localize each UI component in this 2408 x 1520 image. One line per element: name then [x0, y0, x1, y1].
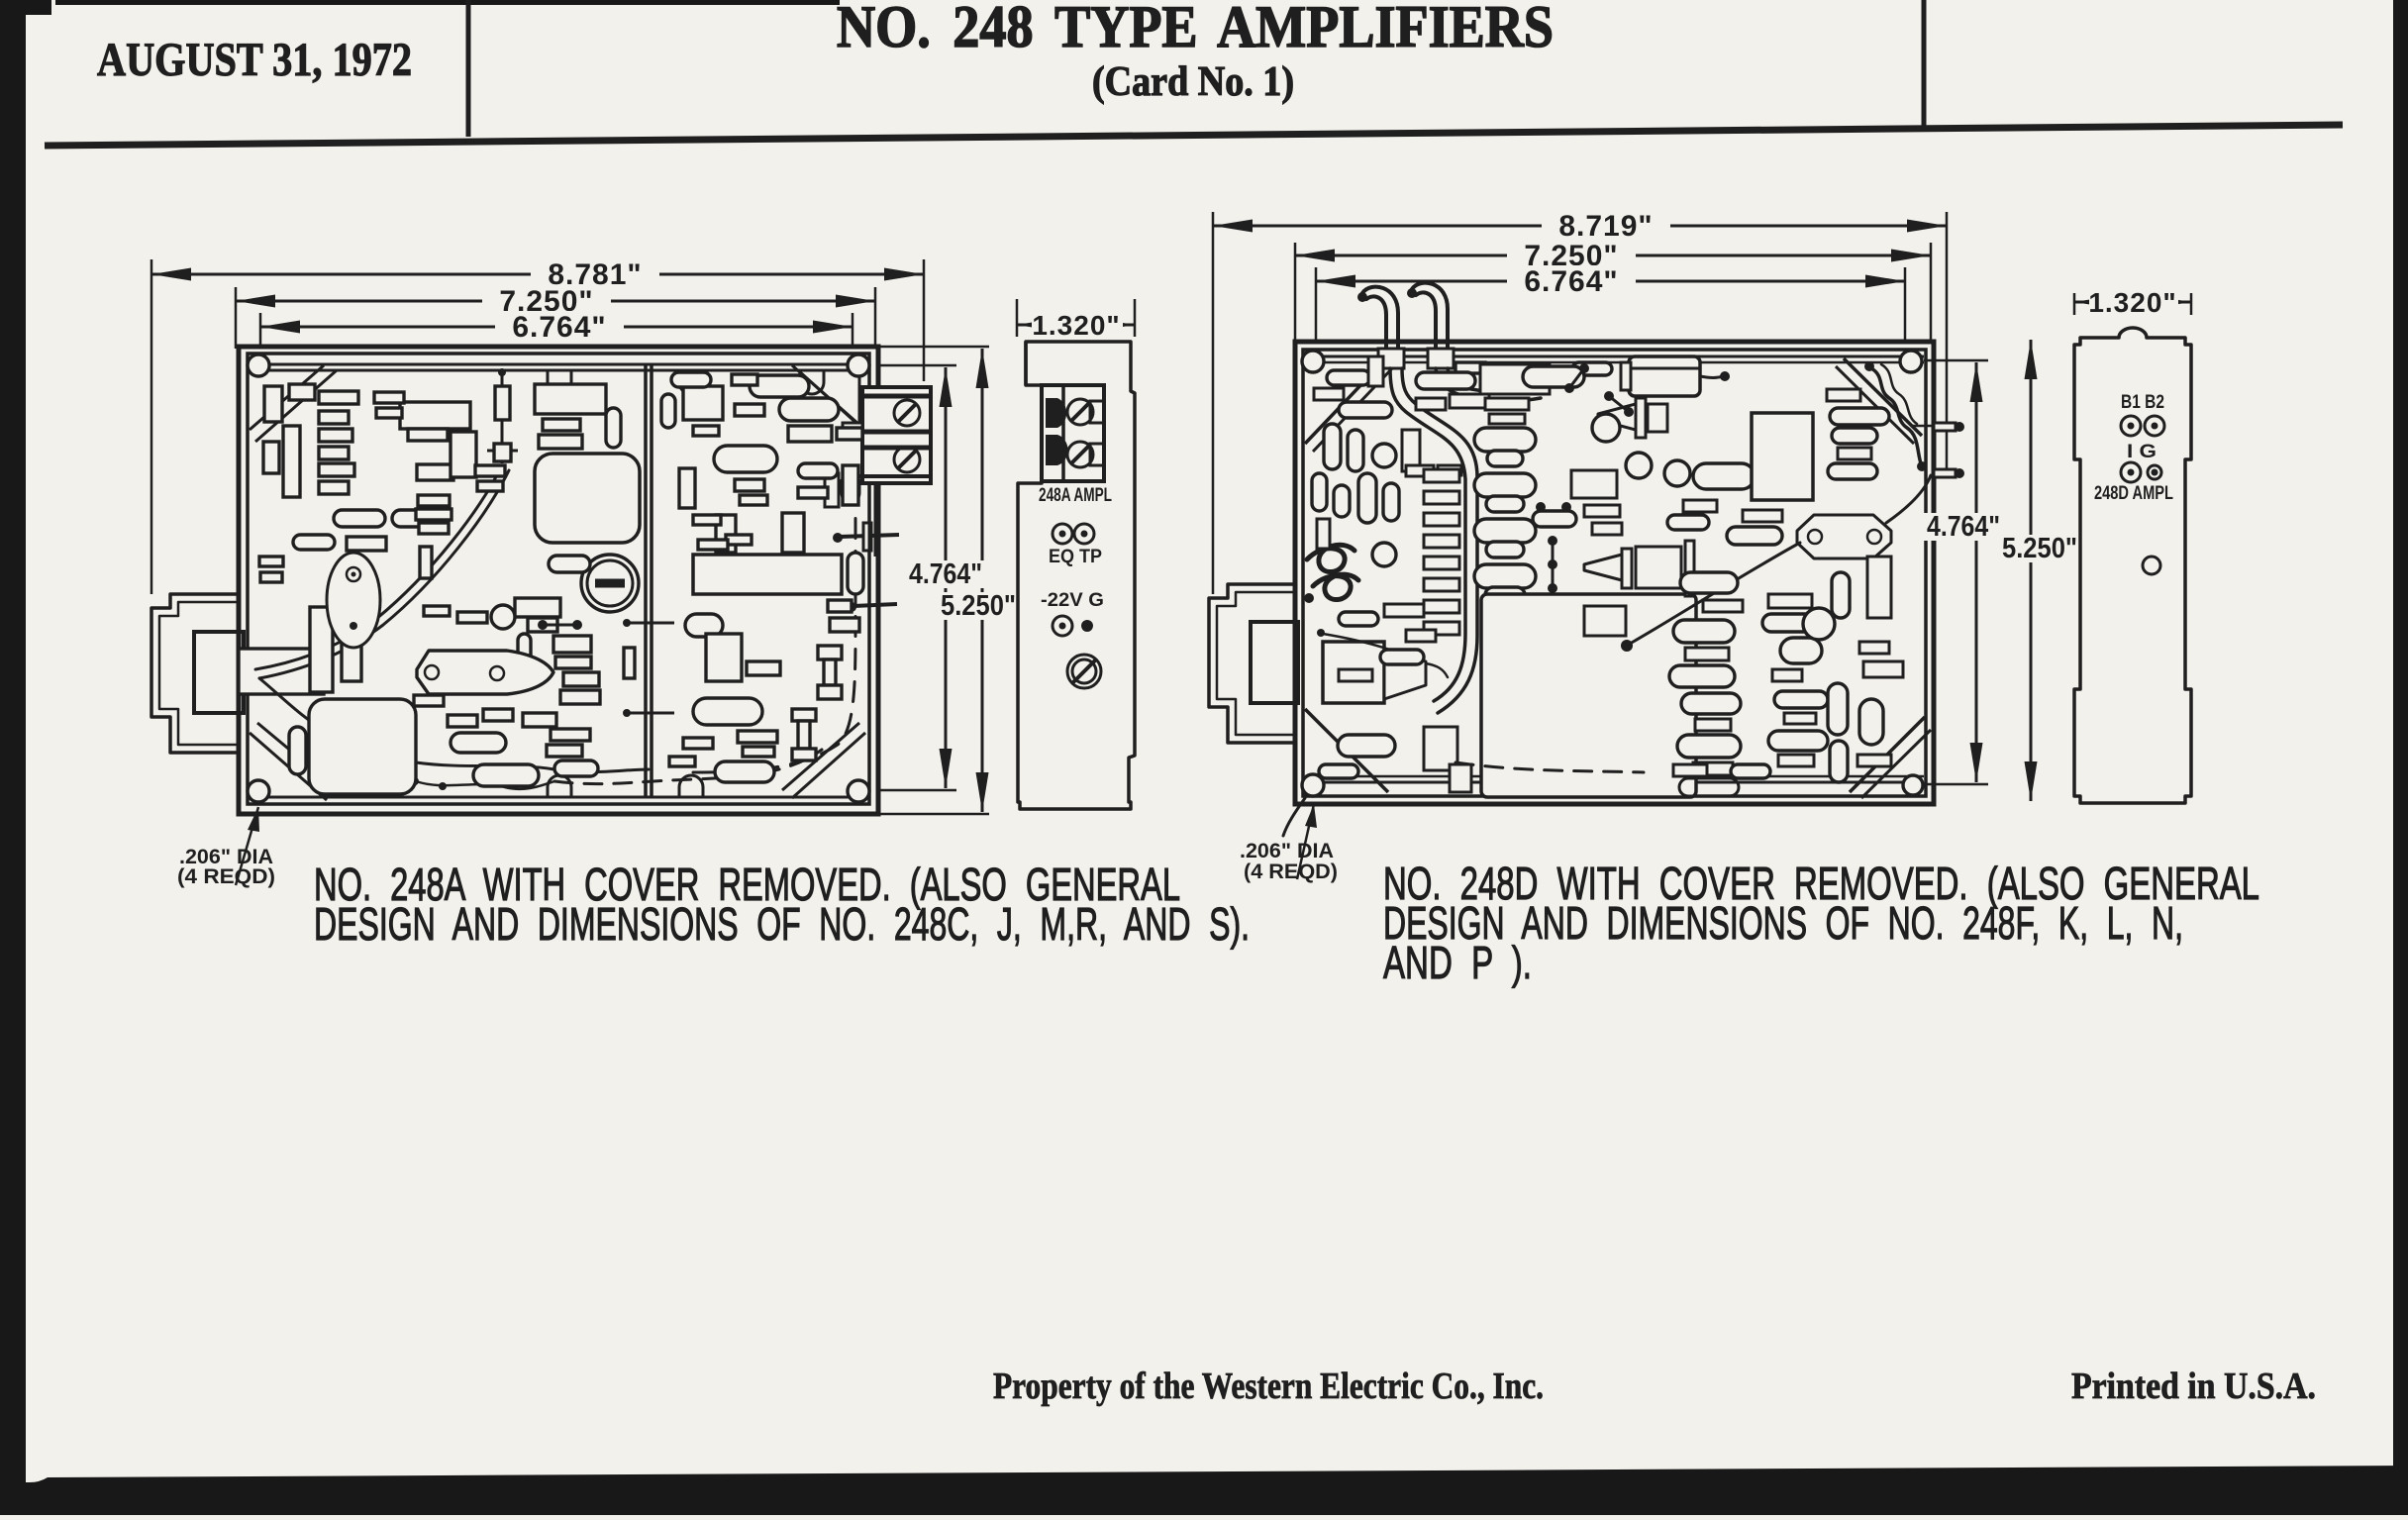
svg-text:-22V G: -22V G [1041, 590, 1104, 611]
svg-text:(Card No. 1): (Card No. 1) [1092, 59, 1294, 105]
svg-text:6.764": 6.764" [512, 311, 606, 344]
svg-text:AUGUST 31, 1972: AUGUST 31, 1972 [97, 34, 412, 86]
svg-text:NO. 248 TYPE AMPLIFIERS: NO. 248 TYPE AMPLIFIERS [837, 0, 1554, 59]
svg-text:EQ TP: EQ TP [1049, 547, 1102, 567]
svg-text:6.764": 6.764" [1524, 265, 1618, 298]
svg-text:5.250": 5.250" [2002, 533, 2077, 564]
svg-text:I G: I G [2127, 442, 2157, 462]
svg-text:5.250": 5.250" [941, 590, 1016, 622]
svg-text:AND P ).: AND P ). [1383, 937, 1532, 988]
svg-text:248D AMPL: 248D AMPL [2094, 483, 2173, 504]
svg-text:DESIGN AND DIMENSIONS OF NO. 2: DESIGN AND DIMENSIONS OF NO. 248C, J, M,… [314, 898, 1250, 950]
svg-text:4.764": 4.764" [909, 558, 982, 590]
svg-text:Printed in U.S.A.: Printed in U.S.A. [2071, 1366, 2316, 1407]
svg-text:Property of the Western Electr: Property of the Western Electric Co., In… [993, 1366, 1544, 1407]
svg-text:4.764": 4.764" [1927, 511, 2000, 543]
svg-text:1.320": 1.320" [2088, 287, 2176, 318]
svg-text:(4 REQD): (4 REQD) [1244, 861, 1338, 883]
svg-text:.206" DIA: .206" DIA [1240, 840, 1334, 862]
svg-text:8.719": 8.719" [1558, 210, 1653, 243]
svg-text:(4 REQD): (4 REQD) [177, 865, 275, 888]
svg-text:248A AMPL: 248A AMPL [1039, 485, 1112, 506]
svg-text:1.320": 1.320" [1032, 310, 1120, 341]
svg-text:B1 B2: B1 B2 [2121, 392, 2164, 413]
